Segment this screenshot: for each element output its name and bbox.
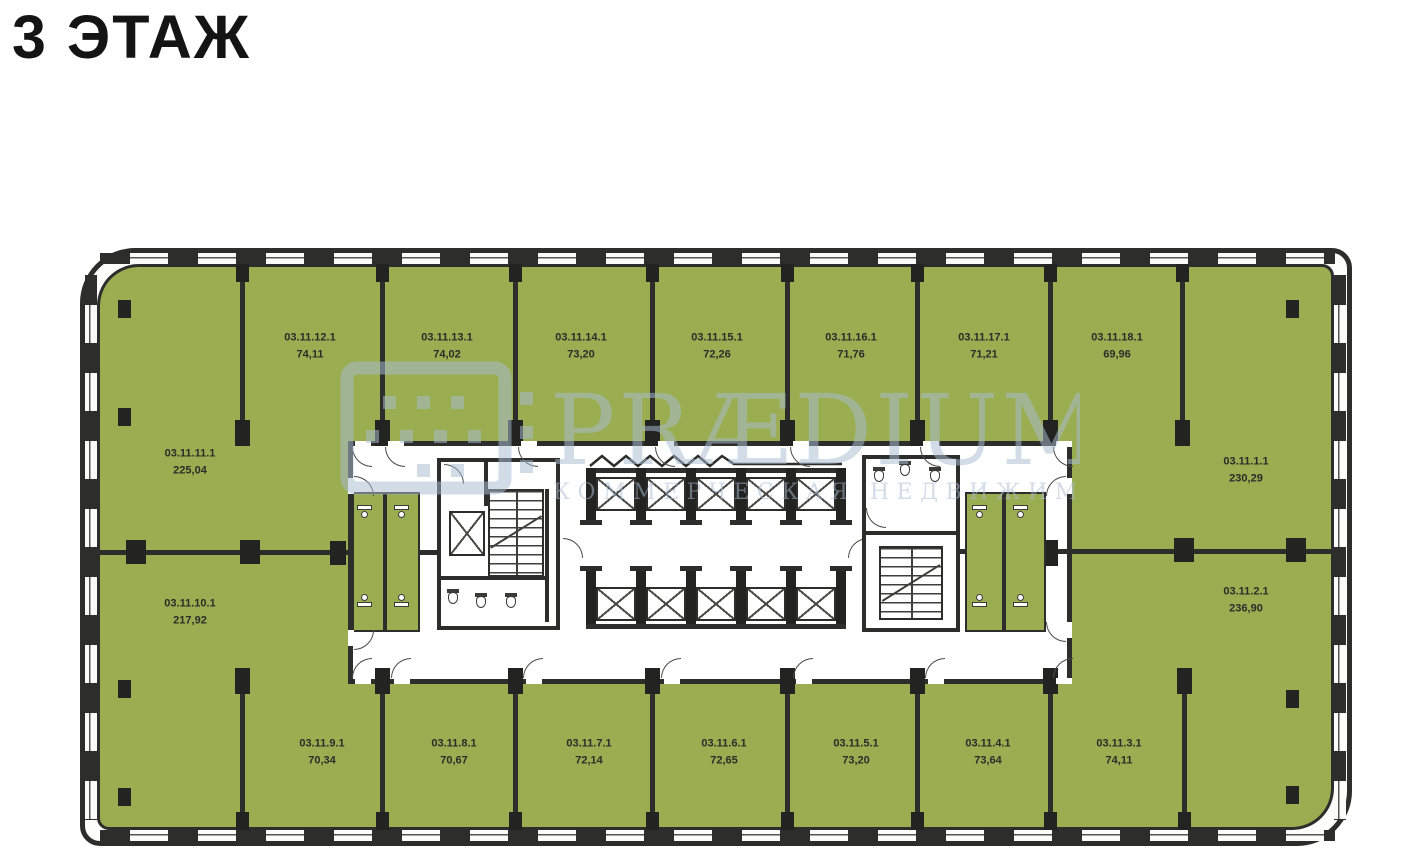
wall bbox=[240, 684, 245, 830]
wall bbox=[240, 264, 245, 441]
column bbox=[376, 812, 389, 830]
wall bbox=[1048, 684, 1053, 830]
door-opening bbox=[394, 678, 410, 684]
column bbox=[1177, 668, 1192, 694]
unit-id: 03.11.15.1 bbox=[691, 330, 742, 347]
wall bbox=[636, 570, 646, 624]
toilet-icon bbox=[506, 596, 516, 608]
wall bbox=[513, 684, 518, 830]
wall bbox=[636, 468, 646, 522]
wall bbox=[680, 566, 702, 571]
desk-icon bbox=[394, 602, 409, 607]
column bbox=[781, 264, 794, 282]
unit-id: 03.11.2.1 bbox=[1223, 584, 1268, 601]
elevator-shaft-icon bbox=[596, 477, 636, 511]
column bbox=[1174, 538, 1194, 562]
unit-label: 03.11.16.171,76 bbox=[825, 330, 876, 363]
unit-area: 69,96 bbox=[1091, 346, 1142, 363]
wall bbox=[630, 566, 652, 571]
wall bbox=[586, 468, 596, 522]
unit-id: 03.11.7.1 bbox=[566, 736, 611, 753]
unit-id: 03.11.18.1 bbox=[1091, 330, 1142, 347]
door-opening bbox=[355, 678, 371, 684]
elevator-shaft-icon bbox=[646, 587, 686, 621]
unit-area: 72,65 bbox=[701, 752, 746, 769]
unit-area: 217,92 bbox=[164, 612, 215, 629]
elevator-shaft-icon bbox=[696, 477, 736, 511]
wall bbox=[780, 566, 802, 571]
unit-area: 73,64 bbox=[965, 752, 1010, 769]
toilet-icon bbox=[900, 464, 910, 476]
unit-label: 03.11.9.170,34 bbox=[299, 736, 344, 769]
wall bbox=[915, 264, 920, 441]
unit-id: 03.11.1.1 bbox=[1223, 454, 1268, 471]
column bbox=[118, 680, 131, 698]
elevator-shaft-icon bbox=[796, 477, 836, 511]
wall bbox=[650, 264, 655, 441]
column bbox=[1286, 786, 1299, 804]
column bbox=[236, 264, 249, 282]
unit-area: 73,20 bbox=[555, 346, 606, 363]
wall bbox=[380, 684, 385, 830]
desk-icon bbox=[972, 505, 987, 510]
toilet-icon bbox=[930, 470, 940, 482]
wall bbox=[730, 520, 752, 525]
unit-area: 73,20 bbox=[833, 752, 878, 769]
wall bbox=[383, 492, 387, 632]
wall bbox=[836, 570, 846, 624]
column bbox=[646, 264, 659, 282]
column bbox=[126, 540, 146, 564]
wall bbox=[1048, 264, 1053, 441]
unit-id: 03.11.17.1 bbox=[958, 330, 1009, 347]
unit-area: 230,29 bbox=[1223, 470, 1268, 487]
wall bbox=[380, 264, 385, 441]
desk-icon bbox=[394, 505, 409, 510]
desk-icon bbox=[1013, 602, 1028, 607]
unit-area: 70,67 bbox=[431, 752, 476, 769]
unit-area: 74,11 bbox=[1096, 752, 1141, 769]
unit-area: 74,02 bbox=[421, 346, 472, 363]
door-opening bbox=[928, 678, 944, 684]
wall bbox=[484, 462, 488, 506]
door-opening bbox=[526, 678, 542, 684]
wall bbox=[915, 684, 920, 830]
column bbox=[1044, 264, 1057, 282]
desk-icon bbox=[357, 602, 372, 607]
column bbox=[235, 420, 250, 446]
unit-label: 03.11.12.174,11 bbox=[284, 330, 335, 363]
elevator-shaft-icon bbox=[449, 511, 485, 556]
toilet-icon bbox=[874, 470, 884, 482]
elevator-shaft-icon bbox=[596, 587, 636, 621]
wall bbox=[686, 570, 696, 624]
desk-icon bbox=[357, 505, 372, 510]
wall bbox=[862, 531, 960, 535]
unit-label: 03.11.5.173,20 bbox=[833, 736, 878, 769]
column bbox=[240, 540, 260, 564]
unit-label: 03.11.8.170,67 bbox=[431, 736, 476, 769]
unit-id: 03.11.8.1 bbox=[431, 736, 476, 753]
column bbox=[376, 264, 389, 282]
door-opening bbox=[1066, 622, 1072, 638]
unit-area: 74,11 bbox=[284, 346, 335, 363]
column bbox=[911, 264, 924, 282]
wall bbox=[513, 264, 518, 441]
column bbox=[911, 812, 924, 830]
wall bbox=[650, 684, 655, 830]
wall bbox=[441, 576, 545, 580]
unit-area: 72,14 bbox=[566, 752, 611, 769]
wall bbox=[785, 264, 790, 441]
column bbox=[1286, 690, 1299, 708]
unit-id: 03.11.6.1 bbox=[701, 736, 746, 753]
unit-label: 03.11.10.1217,92 bbox=[164, 596, 215, 629]
wall bbox=[586, 570, 596, 624]
unit-label: 03.11.18.169,96 bbox=[1091, 330, 1142, 363]
column bbox=[781, 812, 794, 830]
wall bbox=[736, 570, 746, 624]
wall bbox=[586, 468, 846, 473]
column bbox=[1178, 812, 1191, 830]
unit-label: 03.11.2.1236,90 bbox=[1223, 584, 1268, 617]
column bbox=[235, 668, 250, 694]
unit-area: 71,76 bbox=[825, 346, 876, 363]
column bbox=[1176, 264, 1189, 282]
column bbox=[509, 264, 522, 282]
column bbox=[1286, 300, 1299, 318]
door-opening bbox=[1056, 678, 1072, 684]
elevator-shaft-icon bbox=[796, 587, 836, 621]
column bbox=[509, 812, 522, 830]
column bbox=[1286, 538, 1306, 562]
column bbox=[118, 300, 131, 318]
desk-icon bbox=[1013, 505, 1028, 510]
unit-id: 03.11.10.1 bbox=[164, 596, 215, 613]
unit-area: 70,34 bbox=[299, 752, 344, 769]
elevator-shaft-icon bbox=[646, 477, 686, 511]
unit-id: 03.11.16.1 bbox=[825, 330, 876, 347]
unit-id: 03.11.11.1 bbox=[165, 446, 216, 463]
unit-label: 03.11.1.1230,29 bbox=[1223, 454, 1268, 487]
column bbox=[646, 812, 659, 830]
unit-area: 71,21 bbox=[958, 346, 1009, 363]
unit-id: 03.11.4.1 bbox=[965, 736, 1010, 753]
wall bbox=[836, 468, 846, 522]
column bbox=[1044, 812, 1057, 830]
unit-label: 03.11.11.1225,04 bbox=[165, 446, 216, 479]
column bbox=[910, 668, 925, 694]
wall bbox=[736, 468, 746, 522]
desk-icon bbox=[972, 602, 987, 607]
wall bbox=[680, 520, 702, 525]
page-title: 3 ЭТАЖ bbox=[12, 2, 251, 72]
stairs-icon bbox=[488, 489, 544, 577]
unit-id: 03.11.9.1 bbox=[299, 736, 344, 753]
wall bbox=[580, 566, 602, 571]
unit-id: 03.11.3.1 bbox=[1096, 736, 1141, 753]
window-band-right bbox=[1334, 275, 1346, 820]
elevator-shaft-icon bbox=[746, 477, 786, 511]
wall bbox=[780, 520, 802, 525]
unit-id: 03.11.12.1 bbox=[284, 330, 335, 347]
column bbox=[118, 788, 131, 806]
door-opening bbox=[1066, 478, 1072, 494]
column bbox=[1175, 420, 1190, 446]
unit-area: 72,26 bbox=[691, 346, 742, 363]
wall bbox=[830, 566, 852, 571]
toilet-icon bbox=[476, 596, 486, 608]
wall bbox=[1180, 264, 1185, 441]
floor-plan: 3 ЭТАЖ bbox=[0, 0, 1404, 856]
unit-area: 225,04 bbox=[165, 462, 216, 479]
column bbox=[375, 668, 390, 694]
column bbox=[645, 668, 660, 694]
elevator-shaft-icon bbox=[746, 587, 786, 621]
column bbox=[236, 812, 249, 830]
column bbox=[508, 668, 523, 694]
window-band-left bbox=[85, 275, 97, 820]
wall bbox=[686, 468, 696, 522]
unit-id: 03.11.5.1 bbox=[833, 736, 878, 753]
unit-id: 03.11.13.1 bbox=[421, 330, 472, 347]
stairs-icon bbox=[879, 546, 943, 620]
column bbox=[118, 408, 131, 426]
unit-area: 236,90 bbox=[1223, 600, 1268, 617]
unit-label: 03.11.3.174,11 bbox=[1096, 736, 1141, 769]
wall bbox=[630, 520, 652, 525]
window-band-bottom bbox=[100, 830, 1335, 841]
unit-label: 03.11.6.172,65 bbox=[701, 736, 746, 769]
wall bbox=[785, 684, 790, 830]
window-band-top bbox=[100, 253, 1335, 264]
wall bbox=[730, 566, 752, 571]
wall bbox=[786, 570, 796, 624]
wall bbox=[1182, 684, 1187, 830]
unit-label: 03.11.15.172,26 bbox=[691, 330, 742, 363]
unit-label: 03.11.17.171,21 bbox=[958, 330, 1009, 363]
wall bbox=[786, 468, 796, 522]
unit-label: 03.11.13.174,02 bbox=[421, 330, 472, 363]
wall bbox=[830, 520, 852, 525]
wall bbox=[580, 520, 602, 525]
column bbox=[330, 541, 346, 565]
door-opening bbox=[796, 678, 812, 684]
wall bbox=[1002, 492, 1006, 632]
unit-label: 03.11.14.173,20 bbox=[555, 330, 606, 363]
unit-label: 03.11.7.172,14 bbox=[566, 736, 611, 769]
door-opening bbox=[664, 678, 680, 684]
toilet-icon bbox=[448, 592, 458, 604]
wall bbox=[586, 624, 846, 629]
wall bbox=[545, 489, 549, 622]
elevator-shaft-icon bbox=[696, 587, 736, 621]
unit-id: 03.11.14.1 bbox=[555, 330, 606, 347]
unit-label: 03.11.4.173,64 bbox=[965, 736, 1010, 769]
